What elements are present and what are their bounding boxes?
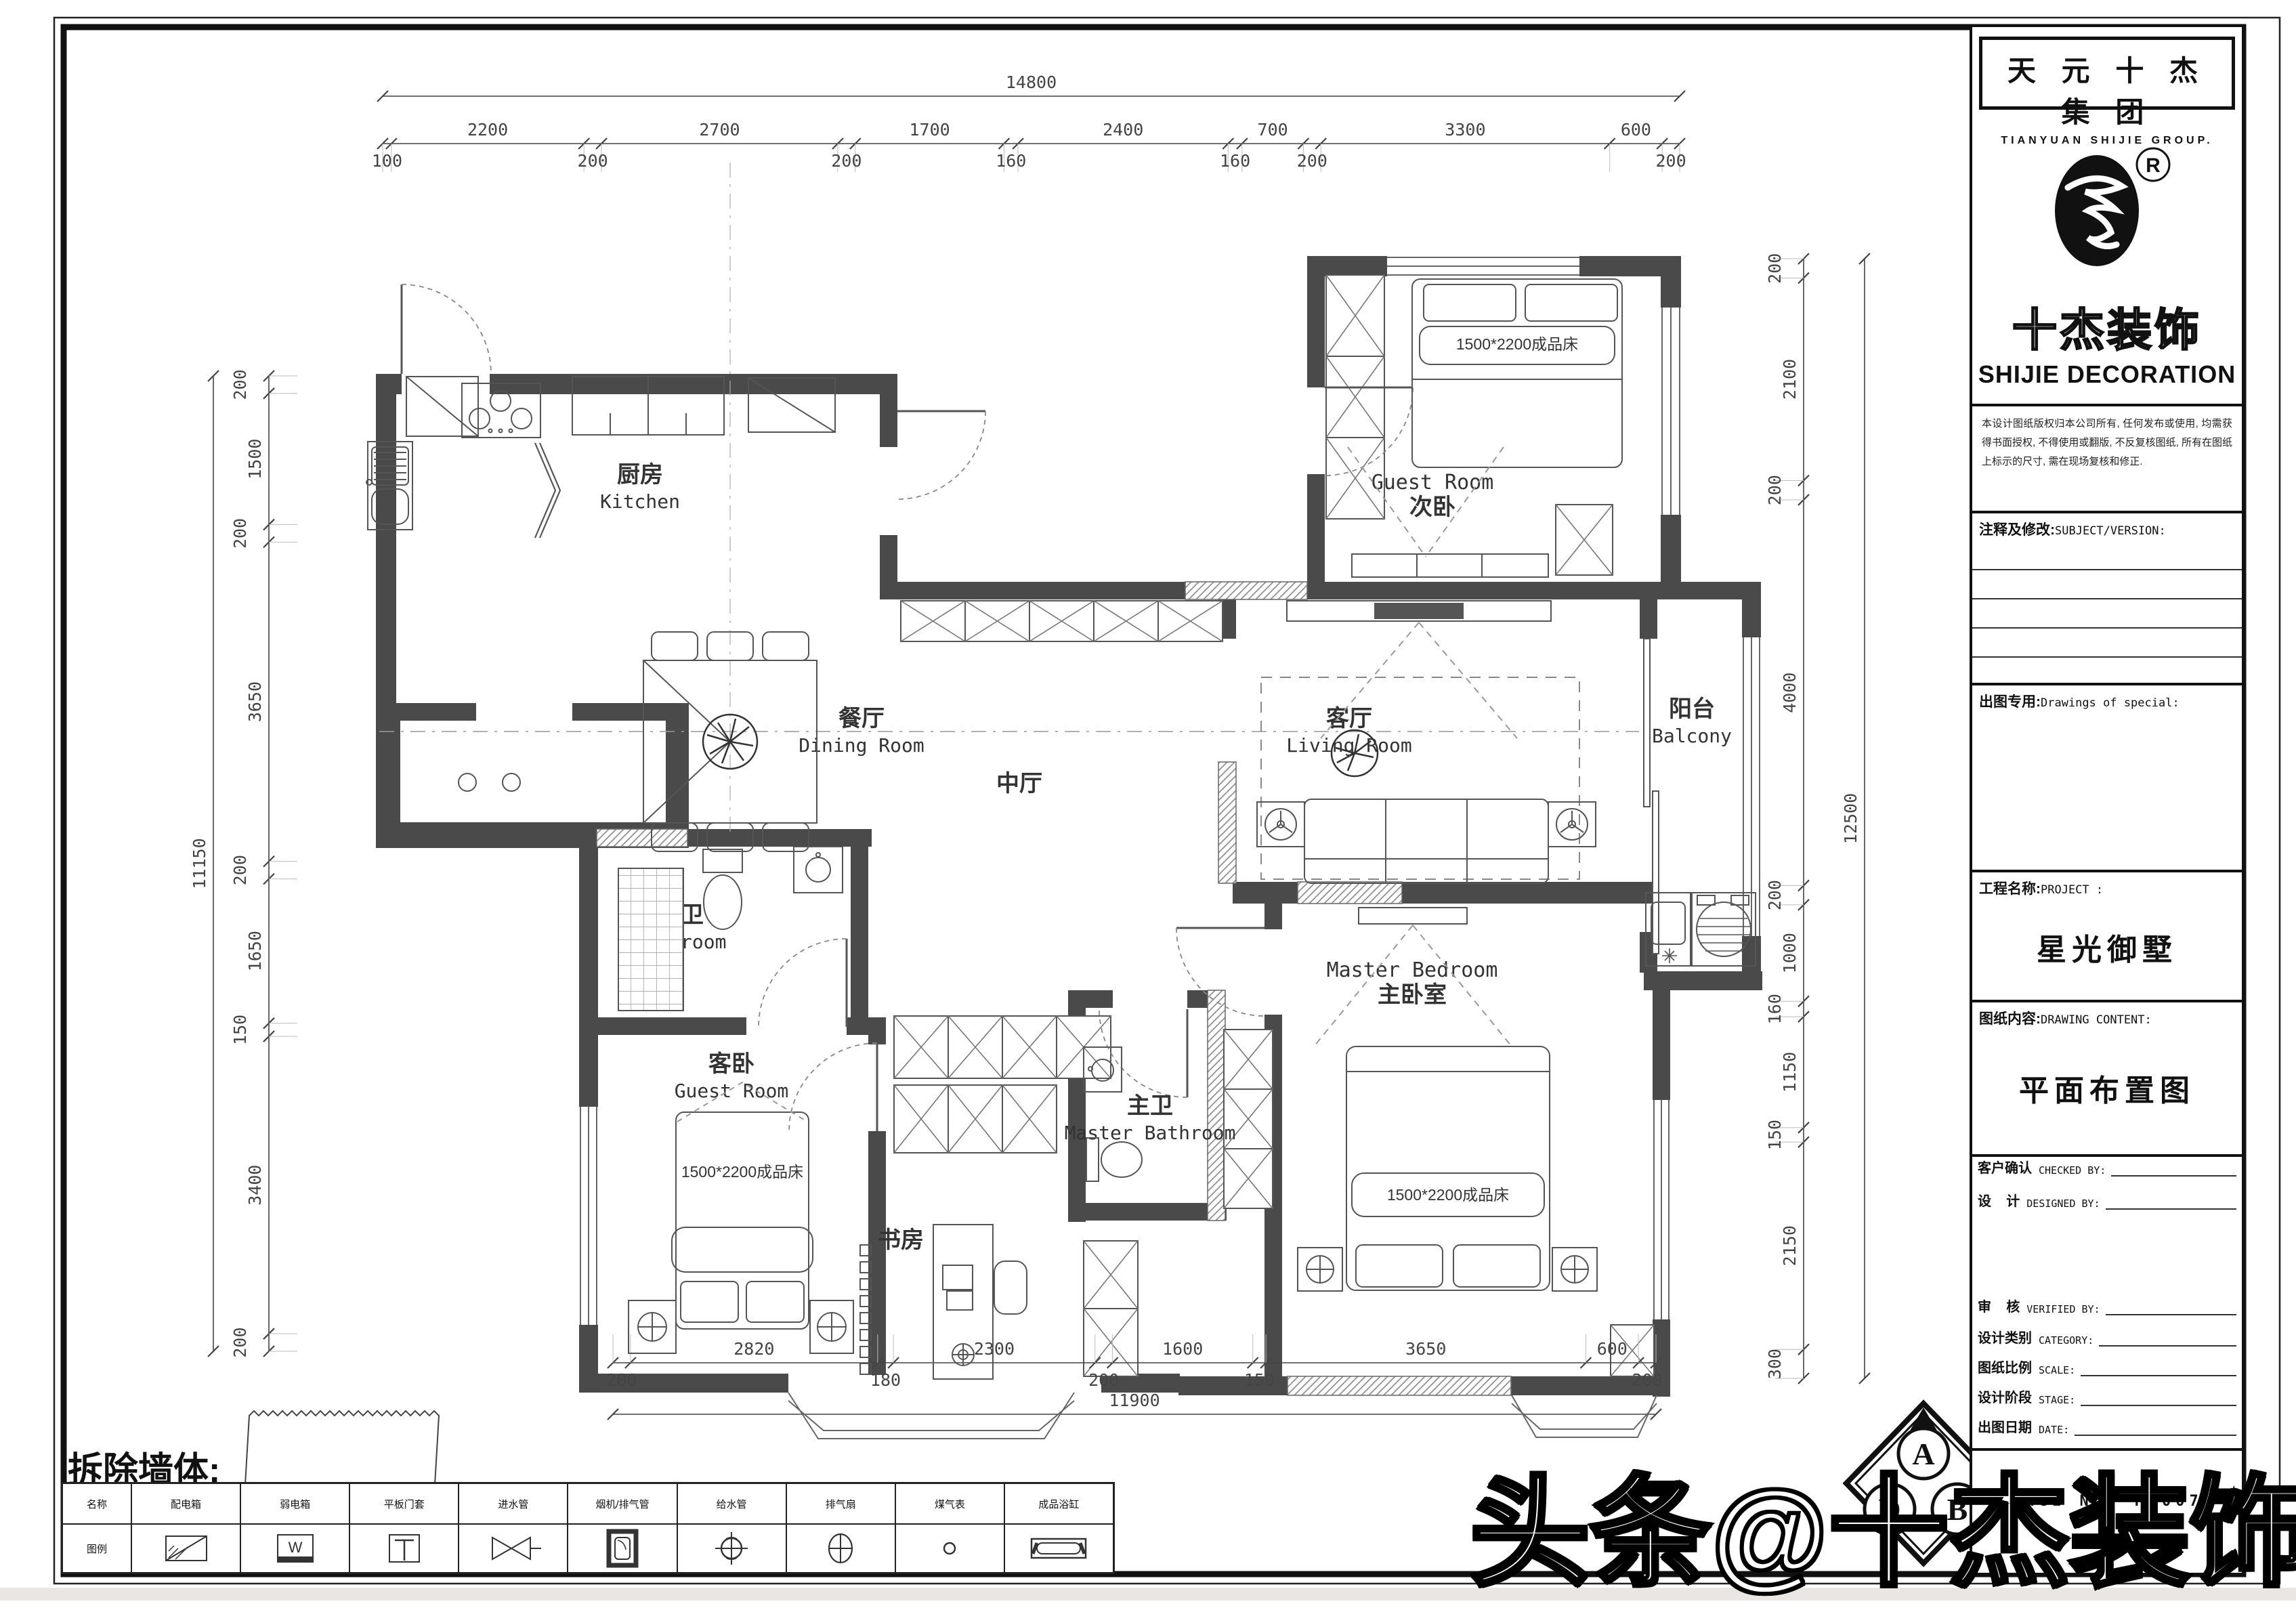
wall bbox=[1307, 474, 1325, 599]
room-label: 厨房 bbox=[617, 462, 663, 488]
lamp-symbol bbox=[1561, 1256, 1588, 1283]
room-label: 书房 bbox=[878, 1227, 924, 1253]
folding-door bbox=[535, 443, 560, 538]
legend-col: 煤气表 bbox=[896, 1484, 1005, 1572]
dim-value: 200 bbox=[230, 855, 250, 885]
dim-value: 300 bbox=[1765, 1349, 1785, 1379]
lamp-symbol bbox=[817, 1313, 846, 1341]
room-label: Guest Room bbox=[675, 1080, 789, 1102]
room-label: 中厅 bbox=[996, 771, 1042, 797]
sofa bbox=[1304, 799, 1548, 883]
hatched-wall bbox=[1208, 990, 1225, 1221]
category-label: 设计类别 bbox=[1978, 1327, 2032, 1347]
shower bbox=[618, 868, 683, 1011]
legend-col: 弱电箱 W bbox=[241, 1484, 350, 1572]
dim-value: 180 bbox=[870, 1370, 901, 1390]
brand-name-cn: 十杰装饰 bbox=[1972, 294, 2242, 359]
verified-by-label: 审 核 bbox=[1978, 1296, 2020, 1315]
legend-col-name: 名称 图例 bbox=[63, 1484, 132, 1572]
dim-value: 2400 bbox=[1103, 120, 1143, 140]
toilet bbox=[1101, 1142, 1142, 1177]
bed bbox=[1346, 1046, 1550, 1290]
bed-size-label: 1500*2200成品床 bbox=[1456, 335, 1578, 353]
floor-plan-canvas: 1002200200270020017001602400160700200330… bbox=[0, 0, 2296, 1601]
dim-value: 200 bbox=[1656, 151, 1686, 171]
brand-name-en: SHIJIE DECORATION bbox=[1972, 360, 2242, 389]
dim-value: 200 bbox=[230, 369, 250, 400]
svg-text:W: W bbox=[288, 1539, 302, 1556]
wall bbox=[579, 847, 598, 1107]
room-label: Balcony bbox=[1652, 725, 1732, 747]
room-label: Guest Room bbox=[1372, 471, 1494, 494]
drawing-content-section: 图纸内容:DRAWING CONTENT: 平面布置图 bbox=[1972, 1002, 2242, 1157]
brand-logo-section: R 十杰装饰 SHIJIE DECORATION bbox=[1972, 112, 2242, 406]
dim-value: 160 bbox=[1765, 994, 1785, 1024]
revision-row bbox=[1972, 627, 2242, 658]
toilet bbox=[704, 875, 742, 929]
dim-value: 12500 bbox=[1841, 793, 1861, 844]
balcony-units bbox=[1646, 893, 1756, 966]
project-section: 工程名称:PROJECT : 星光御墅 bbox=[1972, 872, 2242, 1002]
wall bbox=[1233, 882, 1299, 904]
legend-col: 排气扇 bbox=[787, 1484, 896, 1572]
dim-value: 11150 bbox=[190, 838, 209, 889]
door-swing-arc bbox=[897, 411, 985, 499]
project-label: 工程名称:PROJECT : bbox=[1972, 872, 2242, 898]
wall bbox=[572, 703, 689, 721]
dim-value: 2300 bbox=[974, 1339, 1015, 1359]
revision-row bbox=[1972, 656, 2242, 687]
tv-console bbox=[1359, 908, 1467, 924]
room-label: 次卧 bbox=[1409, 494, 1455, 520]
wall bbox=[400, 703, 476, 721]
legend-col: 配电箱 bbox=[132, 1484, 241, 1572]
wall bbox=[897, 582, 1185, 599]
dim-value: 600 bbox=[1597, 1339, 1628, 1359]
bed-size-label: 1500*2200成品床 bbox=[1387, 1186, 1509, 1204]
door-swing-arc bbox=[759, 939, 847, 1027]
legend-col: 平板门套 bbox=[350, 1484, 459, 1572]
svg-text:R: R bbox=[2146, 154, 2161, 177]
dim-value: 150 bbox=[1244, 1370, 1275, 1390]
dim-value: 200 bbox=[230, 518, 250, 549]
wall bbox=[687, 829, 872, 847]
revision-row bbox=[1972, 598, 2242, 629]
dim-value: 600 bbox=[1621, 120, 1651, 140]
dim-value: 3400 bbox=[245, 1165, 265, 1206]
distribution-box-icon bbox=[161, 1531, 212, 1566]
hatched-wall bbox=[1288, 1376, 1511, 1395]
dim-value: 200 bbox=[578, 151, 608, 171]
toilet-tank bbox=[1086, 1138, 1099, 1181]
gas-meter-icon bbox=[924, 1531, 975, 1566]
designed-by-label: 设 计 bbox=[1978, 1190, 2020, 1210]
checked-by-label: 客户确认 bbox=[1978, 1157, 2032, 1177]
wall bbox=[579, 1325, 598, 1393]
wall bbox=[1307, 264, 1325, 387]
hatched-wall bbox=[1218, 762, 1236, 883]
dim-value: 3650 bbox=[245, 681, 265, 722]
dim-value: 2820 bbox=[734, 1339, 774, 1359]
content-label: 图纸内容:DRAWING CONTENT: bbox=[1972, 1002, 2242, 1028]
subject-version-section: 注释及修改:SUBJECT/VERSION: bbox=[1972, 513, 2242, 685]
dim-value: 2200 bbox=[467, 120, 508, 140]
fan-symbol bbox=[1556, 809, 1588, 840]
dim-value: 200 bbox=[1765, 880, 1785, 910]
exhaust-fan-icon bbox=[815, 1529, 866, 1567]
dim-value: 200 bbox=[606, 1370, 637, 1390]
bathtub-icon bbox=[1026, 1531, 1091, 1566]
door-swing-arc bbox=[402, 284, 491, 374]
revision-row bbox=[1972, 569, 2242, 599]
dim-value: 4000 bbox=[1780, 673, 1800, 713]
bay-window bbox=[788, 1393, 1074, 1439]
scale-label: 图纸比例 bbox=[1978, 1357, 2032, 1376]
door-swing-arc bbox=[1099, 1009, 1187, 1097]
wall bbox=[1640, 599, 1657, 639]
misc-lines bbox=[379, 163, 1657, 1439]
lamp-symbol bbox=[638, 1313, 666, 1341]
date-label: 出图日期 bbox=[1978, 1416, 2032, 1436]
dim-value: 11900 bbox=[1109, 1391, 1160, 1410]
bay-window bbox=[1512, 1395, 1657, 1437]
drawing-sheet: { "colors":{"wall":"#4a4a4a","line":"#55… bbox=[0, 0, 2296, 1601]
guest-room-bottom-furniture bbox=[629, 1082, 853, 1353]
disclaimer-text: 本设计图纸版权归本公司所有, 任何发布或使用, 均需获得书面授权, 不得使用或翻… bbox=[1982, 415, 2232, 471]
wall bbox=[376, 374, 396, 703]
wall bbox=[1661, 256, 1681, 308]
watermark: 头条@十杰装饰 bbox=[1470, 1436, 2296, 1610]
dim-value: 200 bbox=[230, 1328, 250, 1358]
dim-value: 1150 bbox=[1780, 1052, 1800, 1093]
hatched-wall bbox=[1185, 582, 1307, 599]
dim-value: 14800 bbox=[1006, 72, 1057, 92]
drain-hole bbox=[503, 774, 520, 791]
dim-value: 3650 bbox=[1405, 1339, 1446, 1359]
dim-value: 2150 bbox=[1780, 1225, 1800, 1266]
stage-label: 设计阶段 bbox=[1978, 1386, 2032, 1406]
chair bbox=[994, 1261, 1027, 1314]
wall bbox=[1661, 515, 1681, 599]
dim-value: 200 bbox=[1297, 151, 1327, 171]
basin bbox=[794, 847, 843, 893]
dim-value: 200 bbox=[1632, 1370, 1662, 1390]
bed-size-label: 1500*2200成品床 bbox=[681, 1163, 803, 1181]
dim-value: 160 bbox=[996, 151, 1026, 171]
wall bbox=[1264, 904, 1282, 929]
wall bbox=[851, 847, 868, 1019]
lamp-symbol bbox=[1306, 1256, 1334, 1283]
room-label: Master Bathroom bbox=[1065, 1122, 1236, 1144]
bench bbox=[1352, 554, 1548, 577]
subject-label: 注释及修改:SUBJECT/VERSION: bbox=[1972, 513, 2242, 539]
sliding-door bbox=[1644, 639, 1650, 807]
disclaimer-section: 本设计图纸版权归本公司所有, 任何发布或使用, 均需获得书面授权, 不得使用或翻… bbox=[1972, 406, 2242, 513]
flue-icon bbox=[597, 1529, 648, 1568]
dim-value: 200 bbox=[1765, 253, 1785, 284]
project-name: 星光御墅 bbox=[1972, 925, 2242, 969]
drawing-content-name: 平面布置图 bbox=[1972, 1066, 2242, 1109]
room-label: Master Bedroom bbox=[1327, 958, 1498, 982]
drawings-label: 出图专用:Drawings of special: bbox=[1972, 685, 2242, 711]
legend-col: 成品浴缸 bbox=[1005, 1484, 1113, 1572]
company-name-box: 天 元 十 杰 集 团 TIANYUAN SHIJIE GROUP. bbox=[1979, 37, 2235, 110]
door-frame-icon bbox=[379, 1531, 430, 1566]
lamp-symbol bbox=[952, 1344, 974, 1365]
dim-value: 160 bbox=[1220, 151, 1250, 171]
dim-value: 700 bbox=[1258, 120, 1288, 140]
room-label: Dining Room bbox=[799, 734, 924, 757]
toilet-tank bbox=[703, 849, 742, 872]
wall bbox=[1307, 582, 1761, 599]
wall bbox=[880, 535, 897, 599]
water-inlet-valve-icon bbox=[484, 1531, 543, 1566]
room-label: 主卧室 bbox=[1378, 981, 1447, 1008]
legend-table: 名称 图例 配电箱 弱电箱 W 平板门套 进水管 烟机/排气管 bbox=[61, 1482, 1115, 1574]
dim-value: 100 bbox=[372, 151, 402, 171]
dim-value: 1700 bbox=[909, 120, 950, 140]
drawings-special-section: 出图专用:Drawings of special: bbox=[1972, 685, 2242, 872]
signature-section: 设 计 DESIGNED BY: 客户确认 CHECKED BY: 审 核 VE… bbox=[1972, 1157, 2242, 1451]
legend-col: 进水管 bbox=[459, 1484, 568, 1572]
dim-value: 1600 bbox=[1162, 1339, 1203, 1359]
dim-value: 200 bbox=[831, 151, 862, 171]
room-label: 客卧 bbox=[708, 1051, 754, 1077]
rug bbox=[1261, 677, 1579, 879]
fan-symbol bbox=[1265, 809, 1296, 840]
wall bbox=[1402, 882, 1659, 904]
sliding-door bbox=[1653, 791, 1659, 954]
legend-col: 给水管 bbox=[678, 1484, 787, 1572]
room-labels: 厨房Kitchen餐厅Dining Room中厅Guest Room次卧客厅Li… bbox=[600, 335, 1732, 1253]
wall bbox=[1644, 971, 1762, 990]
dim-value: 150 bbox=[1765, 1120, 1785, 1150]
room-label: 餐厅 bbox=[838, 706, 885, 732]
tv bbox=[1375, 603, 1463, 618]
hatched-walls bbox=[597, 582, 1511, 1395]
dim-value: 1000 bbox=[1780, 933, 1800, 973]
wall bbox=[1653, 990, 1670, 1100]
hatched-wall bbox=[1298, 882, 1402, 904]
water-supply-icon bbox=[706, 1529, 757, 1567]
wall bbox=[1068, 1203, 1227, 1221]
legend-col: 烟机/排气管 bbox=[568, 1484, 677, 1572]
legend-symbol-row-label: 图例 bbox=[63, 1525, 131, 1572]
wall bbox=[868, 1017, 886, 1044]
dim-value: 1650 bbox=[245, 931, 265, 971]
room-label: Kitchen bbox=[600, 490, 680, 513]
weak-current-box-icon: W bbox=[270, 1531, 321, 1566]
dim-value: 200 bbox=[1765, 475, 1785, 505]
wall bbox=[880, 374, 897, 447]
dim-value: 1500 bbox=[245, 439, 265, 480]
wall bbox=[597, 1017, 746, 1035]
room-label: 主卫 bbox=[1127, 1093, 1173, 1119]
second-bathroom-fixtures bbox=[618, 847, 843, 1011]
room-label: 阳台 bbox=[1669, 696, 1715, 722]
wall bbox=[1742, 599, 1761, 637]
room-label: Living Room bbox=[1286, 734, 1411, 757]
shijie-logo: R bbox=[2026, 129, 2188, 285]
room-label: 客厅 bbox=[1326, 705, 1372, 732]
dim-value: 200 bbox=[1088, 1370, 1119, 1390]
hatched-wall bbox=[597, 829, 687, 847]
drain-hole bbox=[459, 774, 476, 791]
dim-value: 2700 bbox=[699, 120, 740, 140]
title-block: 天 元 十 杰 集 团 TIANYUAN SHIJIE GROUP. R 十杰装… bbox=[1970, 27, 2242, 1573]
dim-value: 150 bbox=[230, 1015, 250, 1045]
bed bbox=[676, 1112, 809, 1329]
dim-value: 2100 bbox=[1780, 359, 1800, 400]
bed bbox=[1412, 279, 1622, 467]
dim-value: 3300 bbox=[1445, 120, 1485, 140]
